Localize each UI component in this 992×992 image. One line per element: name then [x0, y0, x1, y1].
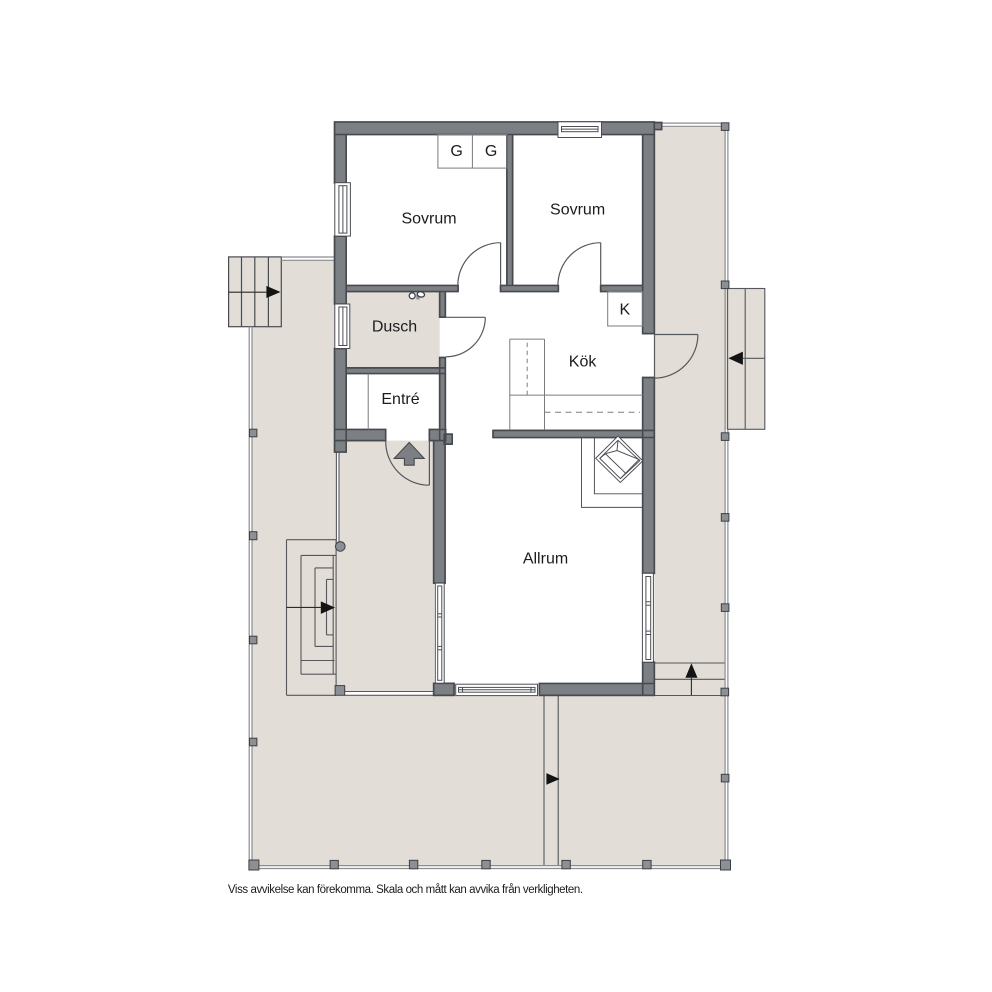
svg-text:Sovrum: Sovrum	[401, 211, 456, 228]
svg-text:G: G	[450, 143, 462, 160]
svg-text:Entré: Entré	[381, 391, 419, 408]
svg-text:K: K	[619, 301, 630, 318]
svg-text:Allrum: Allrum	[523, 551, 568, 568]
svg-text:G: G	[485, 143, 497, 160]
svg-text:Dusch: Dusch	[372, 318, 417, 335]
svg-text:Sovrum: Sovrum	[550, 202, 605, 219]
svg-text:Viss avvikelse kan förekomma.: Viss avvikelse kan förekomma. Skala och …	[228, 884, 583, 896]
svg-text:Kök: Kök	[569, 354, 598, 371]
